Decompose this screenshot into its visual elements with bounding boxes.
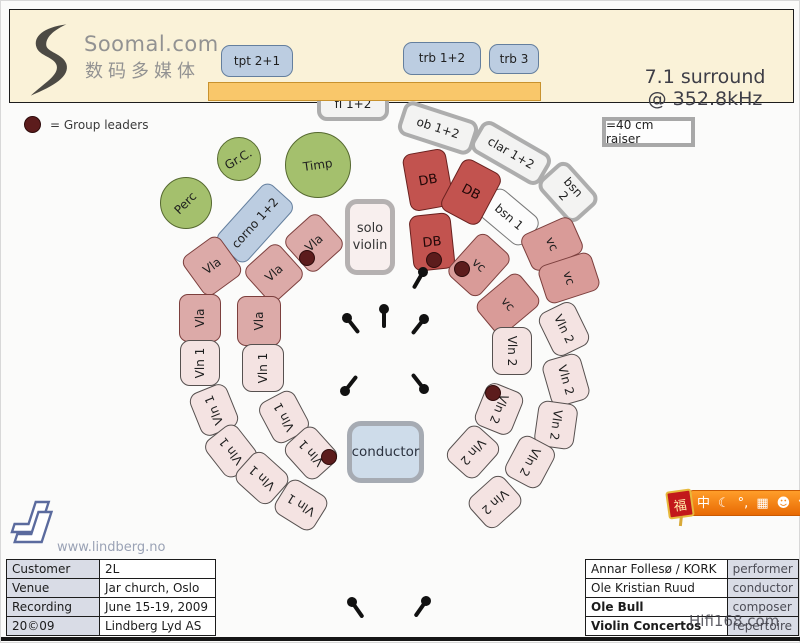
group-leaders-label: = Group leaders [50,118,148,132]
microphone-icon [338,371,362,398]
seat-label: Timp [302,157,333,174]
seat-vln-2: Vln 2 [492,327,532,375]
microphone-icon [345,595,368,622]
leader-dot-icon [24,116,41,133]
group-leader-dot [426,252,442,268]
table-row: Ole Kristian Ruudconductor [586,579,799,598]
table-row: Annar Follesø / KORKperformer [586,560,799,579]
seat-trb-3: trb 3 [489,44,539,74]
table-row: Customer2L [7,560,216,579]
keyboard-icon[interactable]: ▦ [756,497,768,510]
seat-trb-1-2: trb 1+2 [403,42,481,75]
ime-icon-bar[interactable]: 中☾°,▦☻⚒ [689,490,800,516]
seat-label: Gr.C. [223,146,255,172]
brand-name: Soomal.com [84,32,219,56]
group-leader-dot [299,250,315,266]
seat-vla: Vla [237,296,281,346]
lindberg-logo-icon [9,498,61,562]
lindberg-website-link[interactable]: www.lindberg.no [57,540,166,555]
seat-gr-c: Gr.C. [217,137,261,181]
table-row: VenueJar church, Oslo [7,579,216,598]
seat-perc: Perc [160,177,212,229]
surround-format-label: 7.1 surround @ 352.8kHz [610,66,800,110]
microphone-icon [408,265,430,293]
microphone-icon [340,311,364,338]
session-info-table: Customer2LVenueJar church, OsloRecording… [6,559,216,636]
seat-vln-1: Vln 1 [180,340,220,386]
seat-label: Perc [172,189,199,216]
group-leader-dot [485,385,501,401]
credit-name: Ole Kristian Ruud [586,579,728,598]
soomal-logo-icon [26,22,76,102]
seat-timp: Timp [285,132,351,198]
table-row: RecordingJune 15-19, 2009 [7,598,216,617]
info-label: Customer [7,560,100,579]
info-label: Venue [7,579,100,598]
seat-tpt-2-1: tpt 2+1 [221,45,293,77]
stage-riser-bar [208,82,541,101]
group-leaders-legend: = Group leaders [24,116,148,133]
seat-vla: Vla [179,294,221,342]
info-value: June 15-19, 2009 [100,598,216,617]
microphone-icon [407,369,431,396]
watermark: Hifi168.com [689,612,779,630]
table-row: 20©09Lindberg Lyd AS [7,617,216,636]
group-leader-dot [454,261,470,277]
seat-solo-violin: solo violin [345,199,395,275]
orchestra-seating-diagram: { "header": { "brand": "Soomal.com", "br… [0,0,800,643]
credit-name: Annar Follesø / KORK [586,560,728,579]
surround-line1: 7.1 surround [610,66,800,88]
user-icon[interactable]: ☻ [777,497,791,510]
microphone-icon [410,594,433,621]
microphone-icon [407,312,431,339]
info-label: 20©09 [7,617,100,636]
info-label: Recording [7,598,100,617]
credit-role: performer [727,560,798,579]
bottom-divider [1,637,800,641]
new-year-charm-icon: 福 [665,488,695,519]
surround-line2: @ 352.8kHz [610,88,800,110]
brand-name-chinese: 数码多媒体 [85,57,200,83]
group-leader-dot [321,449,337,465]
seat-vln-2: Vln 2 [536,299,593,360]
info-value: Lindberg Lyd AS [100,617,216,636]
microphone-icon [379,304,389,330]
chinese-mode-icon[interactable]: 中 [697,497,710,510]
raiser-legend: =40 cm raiser [602,117,695,147]
punctuation-icon[interactable]: °, [738,497,749,510]
seat-conductor: conductor [347,421,424,483]
info-value: 2L [100,560,216,579]
credit-role: conductor [727,579,798,598]
half-moon-icon[interactable]: ☾ [718,497,730,510]
ime-toolbar[interactable]: 福 中☾°,▦☻⚒ [667,490,800,518]
info-value: Jar church, Oslo [100,579,216,598]
seat-vln-1: Vln 1 [242,344,284,392]
